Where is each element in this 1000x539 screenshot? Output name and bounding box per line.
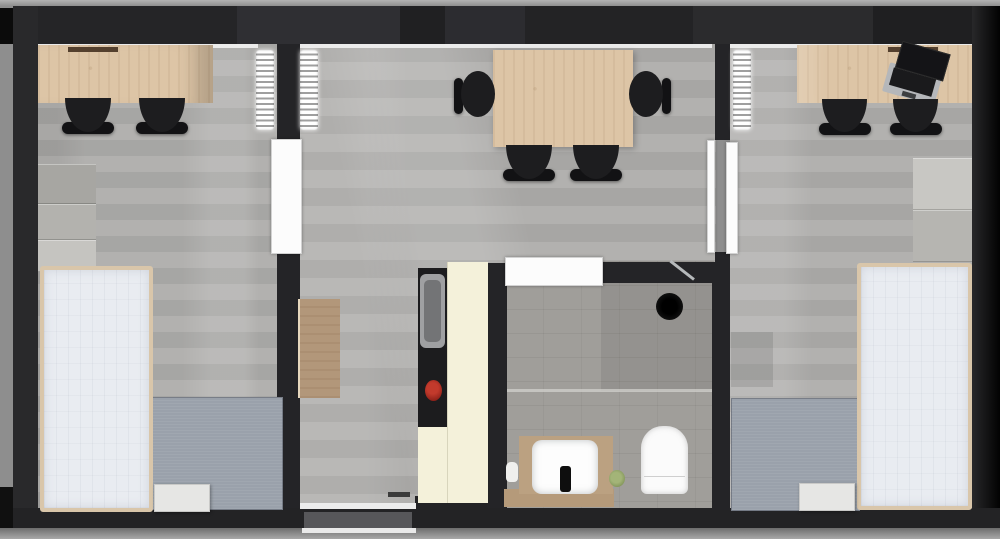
shelf-unit-left-bedroom: [38, 164, 96, 272]
kitchen-counter-lower: [418, 427, 447, 503]
floor-shadow-patch: [731, 332, 773, 387]
door-right-bedroom-panel-b: [726, 142, 738, 254]
basin-faucet: [560, 466, 571, 492]
dining-table: [493, 50, 633, 147]
door-right-bedroom-panel-a: [707, 140, 715, 253]
wall-bathroom-top: [601, 262, 730, 283]
toilet: [641, 426, 688, 494]
shelf-box: [913, 210, 972, 262]
border-strip-top: [0, 0, 1000, 6]
stool-right-bedroom: [799, 483, 855, 511]
soap-bottle: [506, 462, 518, 482]
wall-bathroom-left: [487, 263, 507, 508]
door-bathroom: [505, 257, 603, 286]
bed-right-bedroom: [857, 263, 972, 510]
wall-divider-right-upper: [715, 44, 730, 140]
floor-window: [304, 512, 412, 528]
corner-block-top-left: [0, 8, 13, 44]
wall-left-outer: [13, 6, 38, 512]
chair-base: [662, 78, 671, 114]
desk-left-bedroom: [38, 45, 213, 103]
shelf-box: [38, 164, 96, 204]
border-strip-bottom: [0, 528, 1000, 539]
wall-top-segment: [693, 6, 873, 44]
dining-chair-right: [629, 71, 663, 117]
floor-window-sill-top: [300, 503, 416, 509]
wall-top-segment: [400, 6, 445, 44]
shelf-unit-right-bedroom: [913, 158, 972, 262]
plant: [609, 470, 625, 487]
wall-top-segment: [445, 6, 525, 44]
wall-bathroom-right: [712, 281, 730, 510]
dining-chair-left: [461, 71, 495, 117]
wall-top-segment: [237, 6, 400, 44]
radiator-right-bedroom: [733, 50, 751, 130]
shower-zone: [601, 281, 714, 391]
bed-left-bedroom: [40, 266, 153, 512]
door-left-bedroom: [271, 139, 302, 254]
shelf-box: [38, 204, 96, 240]
radiator-living-room: [300, 50, 318, 130]
stool-left-bedroom: [154, 484, 210, 512]
sideboard: [298, 299, 340, 398]
floor-plan-canvas: [0, 0, 1000, 539]
wall-top: [13, 6, 1000, 44]
shelf-box: [913, 158, 972, 210]
corner-block-bottom-left: [0, 487, 13, 528]
toilet-cistern-seam: [644, 476, 685, 477]
floor-window-sill-bottom: [302, 528, 416, 533]
desk-tray-left: [68, 47, 118, 52]
wall-right-outer: [972, 6, 1000, 528]
shower-glass-partition: [507, 389, 712, 392]
wall-top-segment: [525, 6, 693, 44]
floor-window-handle: [388, 492, 410, 497]
kitchen-sink-basin: [424, 280, 441, 342]
radiator-left-bedroom: [256, 50, 274, 130]
kitchen-sink: [420, 274, 445, 348]
shower-head: [656, 293, 683, 320]
wall-top-segment: [13, 6, 237, 44]
red-pot-on-hob: [425, 380, 442, 401]
window-sill-mid: [300, 44, 712, 48]
kitchen-counter: [447, 262, 488, 503]
